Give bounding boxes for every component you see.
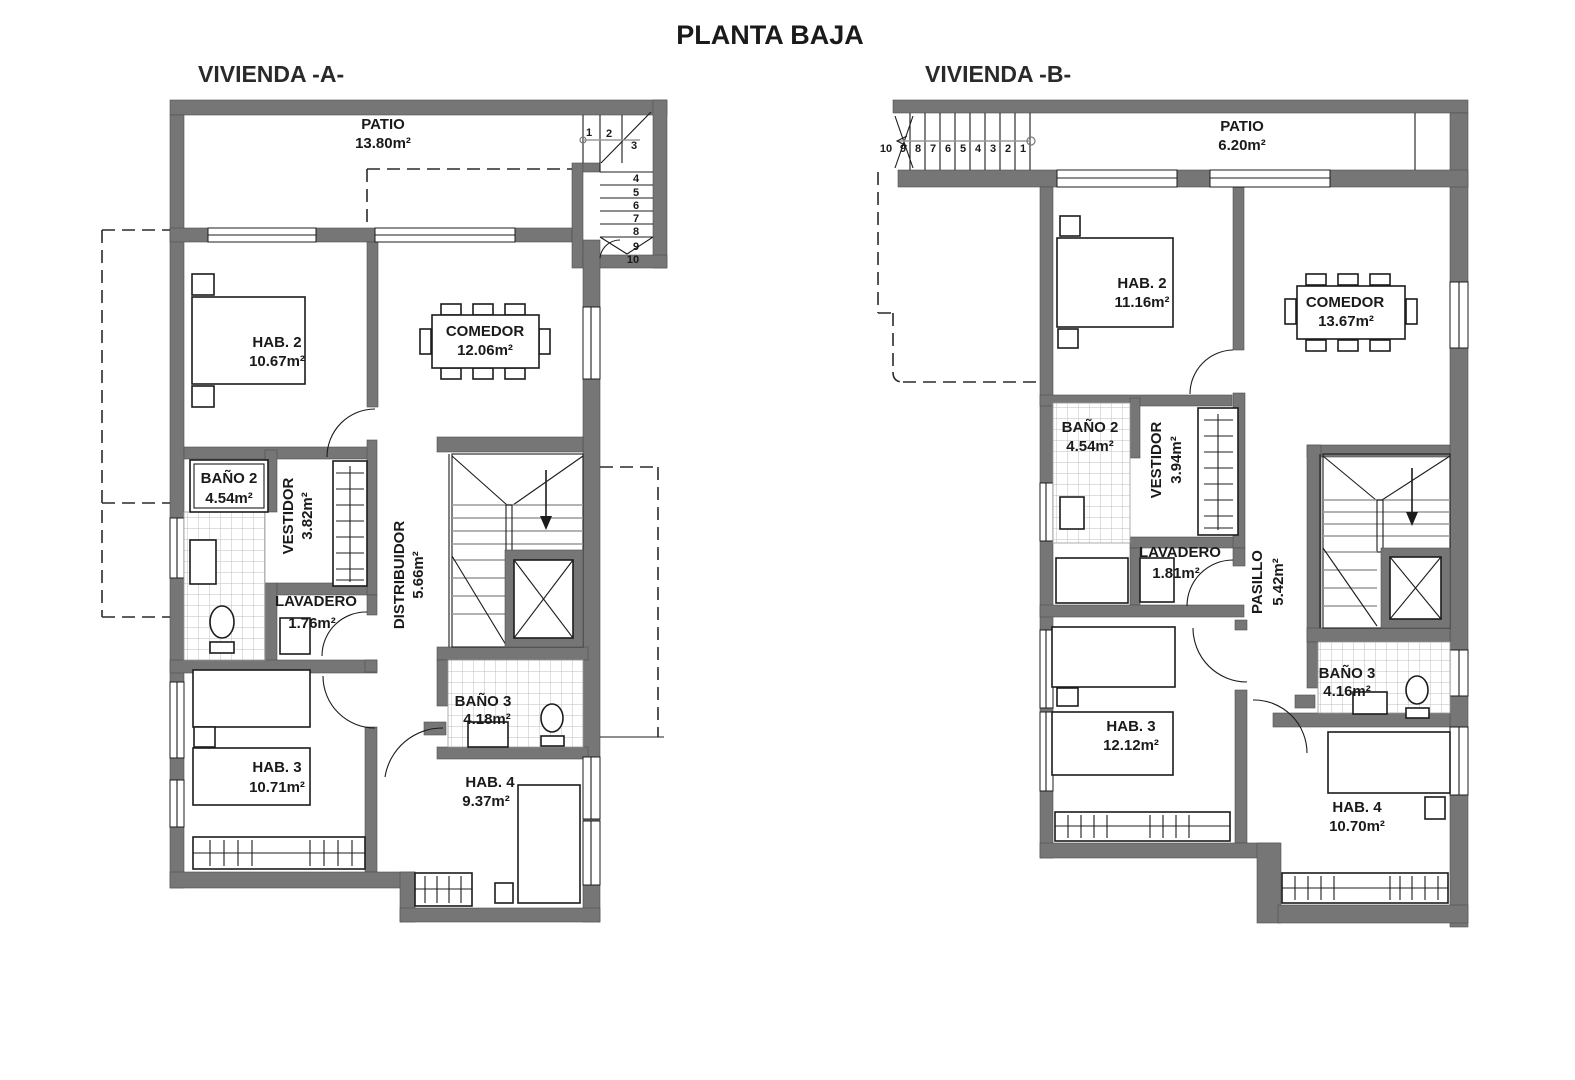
stair-number: 10: [880, 143, 892, 155]
window: [170, 518, 184, 578]
room-label: BAÑO 2: [201, 469, 258, 487]
room-area: 11.16m²: [1114, 294, 1169, 311]
plan-b: VIVIENDA -B-: [878, 61, 1468, 927]
room-area: 10.70m²: [1329, 818, 1385, 835]
stair-number: 9: [633, 241, 639, 253]
plan-a-title: VIVIENDA -A-: [198, 61, 344, 87]
window: [583, 307, 600, 379]
room-label: BAÑO 3: [455, 692, 512, 710]
room-label: HAB. 3: [1106, 718, 1155, 735]
stair-number: 4: [975, 143, 982, 155]
room-label: LAVADERO: [275, 593, 357, 610]
wardrobe-icon: [1055, 812, 1230, 841]
room-area: 5.66m²: [410, 551, 427, 599]
room-label: COMEDOR: [446, 323, 525, 340]
window: [170, 780, 184, 827]
window: [1040, 630, 1053, 708]
room-area: 12.06m²: [457, 342, 513, 359]
window: [170, 682, 184, 758]
wardrobe-icon: [1198, 408, 1238, 535]
room-area: 1.81m²: [1152, 565, 1200, 582]
door-arc: [1193, 628, 1247, 682]
stair-number: 6: [633, 200, 639, 212]
window: [583, 821, 600, 885]
room-area: 4.54m²: [1066, 438, 1114, 455]
door-arc: [385, 728, 443, 777]
stair-number: 3: [990, 143, 996, 155]
sheet-title: PLANTA BAJA: [676, 20, 864, 50]
room-label: LAVADERO: [1139, 544, 1221, 561]
room-area: 4.54m²: [205, 490, 253, 507]
room-label: PASILLO: [1249, 550, 1266, 614]
window: [375, 228, 515, 242]
stair-number: 10: [627, 254, 639, 266]
room-area: 10.71m²: [249, 779, 305, 796]
room-label: DISTRIBUIDOR: [391, 521, 408, 630]
window: [1210, 170, 1330, 187]
elevator-icon: [505, 550, 583, 647]
plan-b-dashed-boundary: [878, 172, 1040, 382]
room-label: HAB. 4: [1332, 799, 1382, 816]
room-label: BAÑO 2: [1062, 418, 1119, 436]
wardrobe-icon: [1282, 873, 1448, 903]
stair-number: 5: [960, 143, 966, 155]
room-area: 13.80m²: [355, 135, 411, 152]
window: [208, 228, 316, 242]
plan-b-walls: [893, 100, 1468, 927]
room-area: 4.18m²: [463, 711, 511, 728]
sink-icon: [1060, 497, 1084, 529]
stair-number: 8: [915, 143, 921, 155]
room-area: 10.67m²: [249, 353, 305, 370]
elevator-icon: [1381, 548, 1450, 628]
room-area: 13.67m²: [1318, 313, 1374, 330]
wardrobe-icon: [333, 461, 367, 586]
bathtub-icon: [1056, 558, 1128, 603]
toilet-icon: [210, 606, 234, 653]
window: [583, 757, 600, 819]
wardrobe-icon: [193, 837, 365, 869]
stair-number: 8: [633, 226, 639, 238]
room-label: HAB. 2: [1117, 275, 1166, 292]
window: [1040, 712, 1053, 791]
stair-number: 7: [633, 213, 639, 225]
stair-number: 4: [633, 173, 640, 185]
floor-plan-sheet: PLANTA BAJA VIVIENDA -A-: [0, 0, 1575, 1080]
room-label: COMEDOR: [1306, 294, 1385, 311]
window: [1450, 282, 1468, 348]
toilet-icon: [541, 704, 564, 746]
stair-number: 2: [1005, 143, 1011, 155]
wardrobe-icon: [415, 873, 472, 906]
window: [1450, 650, 1468, 696]
plan-b-title: VIVIENDA -B-: [925, 61, 1071, 87]
room-label: PATIO: [1220, 118, 1264, 135]
stair-number: 3: [631, 140, 637, 152]
room-label: VESTIDOR: [280, 477, 297, 554]
door-arc: [1190, 350, 1233, 394]
room-area: 3.82m²: [299, 492, 316, 540]
room-area: 1.76m²: [288, 615, 336, 632]
window: [1040, 483, 1053, 541]
room-label: BAÑO 3: [1319, 664, 1376, 682]
room-area: 4.16m²: [1323, 683, 1371, 700]
room-label: PATIO: [361, 116, 405, 133]
stair-number: 7: [930, 143, 936, 155]
plan-a: VIVIENDA -A-: [102, 61, 667, 922]
exterior-stairs-icon: 10 9 8 7 6 5 4 3 2 1: [880, 113, 1415, 170]
window: [1057, 170, 1177, 187]
room-label: VESTIDOR: [1148, 421, 1165, 498]
sink-icon: [190, 540, 216, 584]
room-area: 5.42m²: [1270, 558, 1287, 606]
floor-plan-drawing: PLANTA BAJA VIVIENDA -A-: [0, 0, 1575, 1080]
stair-number: 2: [606, 128, 612, 140]
stair-number: 6: [945, 143, 951, 155]
toilet-icon: [1406, 676, 1429, 718]
room-area: 9.37m²: [462, 793, 510, 810]
door-arc: [323, 676, 375, 728]
stair-number: 9: [900, 143, 906, 155]
room-label: HAB. 4: [465, 774, 515, 791]
window: [1450, 727, 1468, 795]
stair-number: 1: [586, 127, 592, 139]
room-label: HAB. 3: [252, 759, 301, 776]
room-label: HAB. 2: [252, 334, 301, 351]
stair-number: 5: [633, 187, 639, 199]
room-area: 6.20m²: [1218, 137, 1266, 154]
stair-number: 1: [1020, 143, 1026, 155]
room-area: 3.94m²: [1168, 436, 1185, 484]
room-area: 12.12m²: [1103, 737, 1159, 754]
